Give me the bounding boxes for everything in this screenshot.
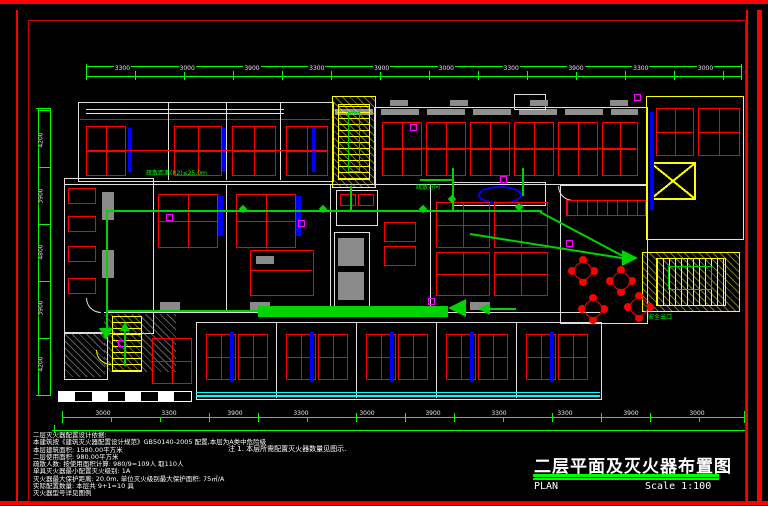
- dim-labels-left: 42003900480039004200: [36, 112, 48, 392]
- glass-partition: [230, 332, 234, 382]
- evac-route: [108, 310, 258, 312]
- power-line: [382, 148, 636, 149]
- evac-corridor-bar: [258, 306, 448, 317]
- workstation-cluster: [152, 338, 192, 384]
- evac-route: [522, 168, 524, 196]
- equipment: [384, 246, 416, 266]
- dim-label: 3000: [94, 411, 111, 417]
- window-wall-bottom: [196, 395, 600, 397]
- door-marker: [500, 176, 507, 183]
- exit-label: 安全出口: [648, 314, 672, 321]
- fixture: [338, 238, 364, 266]
- glass-partition: [310, 332, 314, 382]
- wall-divider: [516, 322, 517, 398]
- workstation-cluster: [232, 126, 276, 176]
- desk: [102, 250, 114, 278]
- wall-divider: [436, 322, 437, 398]
- elevator-shaft: [650, 162, 696, 200]
- dim-label: 3300: [292, 411, 309, 417]
- wall-red-line: [80, 119, 330, 120]
- dim-label: 3000: [179, 66, 196, 72]
- wall-divider: [168, 102, 169, 180]
- frame-right-border: [746, 10, 748, 502]
- evac-route: [452, 168, 454, 212]
- workstation-cluster: [426, 122, 466, 176]
- dim-label: 3300: [556, 411, 573, 417]
- workstation-cluster: [558, 122, 598, 176]
- workstation-cluster: [286, 126, 328, 176]
- dim-label: 3000: [438, 66, 455, 72]
- dim-terminator: [62, 411, 63, 423]
- scale-text: Scale 1:100: [645, 481, 711, 492]
- evac-arrow-right: [622, 250, 638, 266]
- frame-left-border: [16, 10, 18, 502]
- dim-label: 3000: [358, 411, 375, 417]
- workstation-cluster: [602, 122, 638, 176]
- title-underline: [533, 474, 719, 477]
- wall-divider: [276, 322, 277, 398]
- evac-arrow-up: [120, 322, 130, 331]
- workstation-cluster: [494, 252, 548, 296]
- evac-distance-label: 疏散距离(R2)≤25.0m: [146, 170, 207, 177]
- stair-rail: [668, 266, 712, 290]
- dim-terminator: [86, 64, 87, 80]
- dim-label: 3900: [567, 66, 584, 72]
- desk: [256, 256, 274, 264]
- glass-partition: [296, 196, 301, 236]
- dim-label: 3300: [308, 66, 325, 72]
- door-marker: [634, 94, 641, 101]
- evac-route: [490, 308, 516, 310]
- equipment: [358, 194, 374, 206]
- desk: [390, 100, 408, 106]
- legend-scale-bar: [58, 391, 192, 402]
- workstation-cluster: [398, 334, 428, 380]
- dim-label: 3900: [373, 66, 390, 72]
- workstation-cluster: [470, 122, 510, 176]
- wall-divider: [226, 102, 227, 180]
- equipment: [340, 194, 356, 206]
- wall-yellow-line: [86, 109, 284, 110]
- plan-label: PLAN: [534, 481, 558, 492]
- desk: [450, 100, 468, 106]
- note-line: 灭火器型号详见图例: [33, 490, 266, 497]
- door-marker: [166, 214, 173, 221]
- dim-label: 3300: [632, 66, 649, 72]
- center-note: 注 1. 本层所需配置灭火器数量见图示.: [228, 444, 346, 454]
- sofa: [68, 246, 96, 262]
- dim-terminator: [741, 64, 742, 80]
- sofa: [68, 278, 96, 294]
- drawing-sheet: 3300300039003300390030003300390033003000…: [0, 0, 768, 506]
- evac-arrow-left: [478, 303, 490, 315]
- dim-terminator: [744, 411, 745, 423]
- wall-divider: [280, 102, 281, 180]
- stair-rail: [348, 112, 360, 172]
- workstation-cluster: [158, 194, 218, 248]
- glass-partition: [650, 112, 654, 210]
- wall-divider: [330, 185, 331, 312]
- dim-terminator: [36, 108, 50, 109]
- evac-route: [350, 186, 352, 210]
- wall-divider: [430, 185, 431, 312]
- door-marker: [298, 220, 305, 227]
- dim-label: 4800: [39, 243, 45, 260]
- dim-label: 3300: [160, 411, 177, 417]
- door-marker: [410, 124, 417, 131]
- dim-label: 3300: [490, 411, 507, 417]
- evac-arrow-left: [448, 299, 466, 317]
- dim-label: 3000: [697, 66, 714, 72]
- wall-divider: [356, 322, 357, 398]
- round-table: [574, 262, 592, 280]
- dim-label: 3900: [622, 411, 639, 417]
- dim-label: 4200: [39, 131, 45, 148]
- dim-line-left-2: [50, 108, 51, 396]
- frame-top-border: [0, 0, 768, 4]
- dim-label: 3900: [243, 66, 260, 72]
- glass-partition: [218, 196, 223, 236]
- dim-line-bottom-2: [52, 430, 745, 431]
- workstation-cluster: [436, 252, 490, 296]
- door-marker: [428, 298, 435, 305]
- sofa: [68, 216, 96, 232]
- window-wall-bottom-line: [196, 392, 600, 393]
- desk: [102, 192, 114, 220]
- dim-labels-top: 3300300039003300390030003300390033003000: [90, 65, 738, 73]
- workstation-cluster: [236, 194, 296, 248]
- dim-label: 3300: [114, 66, 131, 72]
- dim-label: 4200: [39, 355, 45, 372]
- workstation-cluster: [656, 108, 694, 156]
- fixture: [338, 272, 364, 300]
- dim-label: 3900: [226, 411, 243, 417]
- desk: [530, 100, 548, 106]
- wall-divider: [226, 185, 227, 312]
- reception-line: [250, 270, 312, 271]
- evac-route: [106, 212, 108, 330]
- bar-counter: [566, 200, 646, 216]
- evac-arrow-down: [99, 328, 113, 340]
- notes-block: 二层灭火器配置设计依据:本建筑按《建筑灭火器配置设计规范》GB50140-200…: [33, 432, 266, 498]
- evac-route: [420, 179, 453, 181]
- workstation-cluster: [86, 126, 126, 176]
- frame-right-border-thick: [757, 10, 762, 502]
- title-underline: [533, 478, 719, 480]
- equipment: [384, 222, 416, 242]
- workstation-cluster: [238, 334, 268, 380]
- glass-partition: [390, 332, 394, 382]
- round-table: [612, 272, 630, 290]
- dim-label: 3000: [688, 411, 705, 417]
- workstation-cluster: [698, 108, 740, 156]
- round-table: [630, 298, 648, 316]
- dim-label: 3300: [503, 66, 520, 72]
- desk: [610, 100, 628, 106]
- workstation-cluster: [478, 334, 508, 380]
- dim-line-top-2: [86, 76, 742, 77]
- dim-terminator: [36, 395, 50, 396]
- round-table: [584, 300, 602, 318]
- workstation-cluster: [436, 202, 490, 248]
- glass-partition: [470, 332, 474, 382]
- wall-yellow-line: [86, 113, 284, 114]
- door-marker: [566, 240, 573, 247]
- dim-label: 3900: [39, 187, 45, 204]
- evac-route: [124, 330, 126, 366]
- workstation-cluster: [558, 334, 588, 380]
- glass-partition: [550, 332, 554, 382]
- dim-label: 3900: [424, 411, 441, 417]
- power-line: [88, 150, 328, 151]
- dim-labels-bottom: 3000330039003300300039003300330039003000: [70, 410, 730, 418]
- sofa: [68, 188, 96, 204]
- workstation-cluster: [514, 122, 554, 176]
- workstation-cluster: [318, 334, 348, 380]
- desk: [160, 302, 180, 310]
- evac-direction-label: 疏散方向: [416, 184, 440, 191]
- dim-label: 3900: [39, 299, 45, 316]
- workstation-cluster: [174, 126, 222, 176]
